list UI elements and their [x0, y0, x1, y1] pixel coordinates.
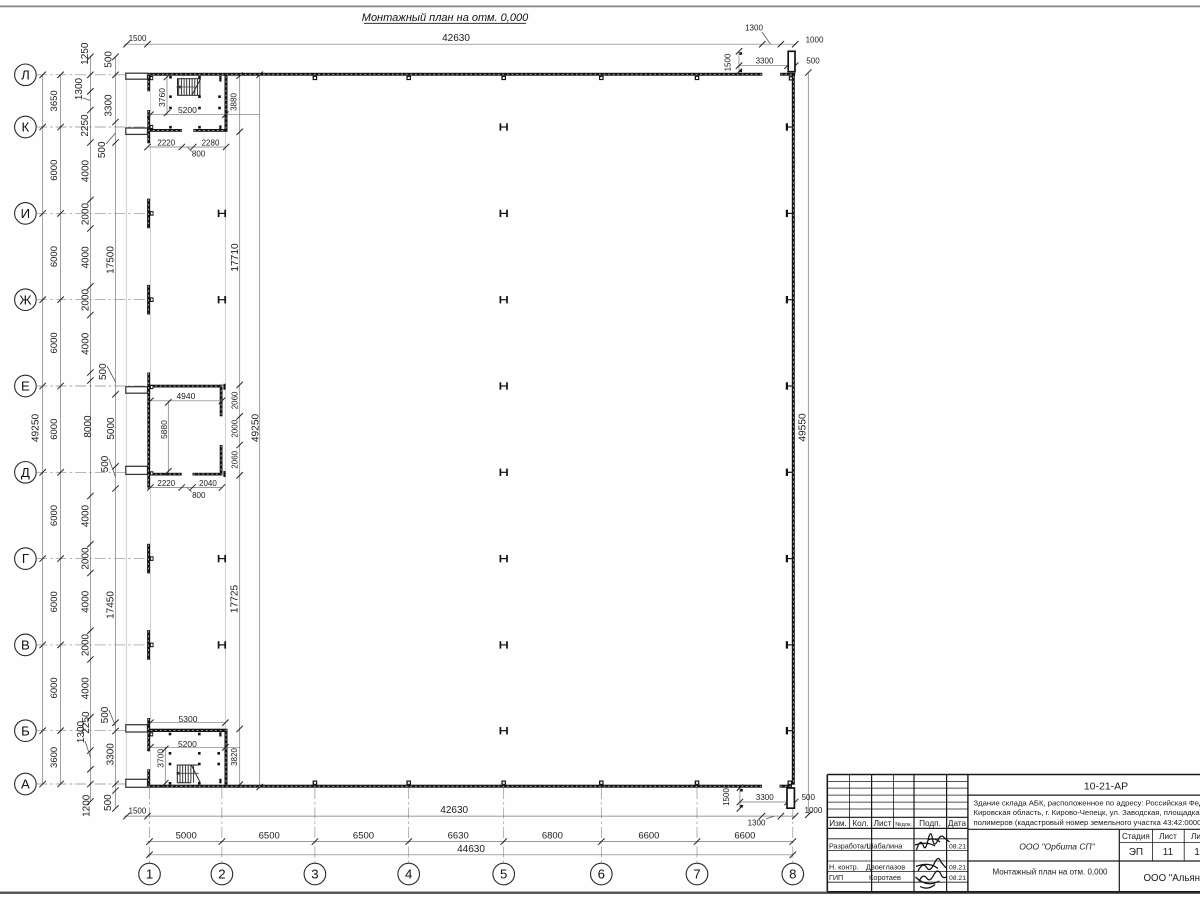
svg-text:1000: 1000 [805, 806, 823, 815]
svg-text:6000: 6000 [49, 160, 60, 181]
svg-text:6600: 6600 [734, 831, 755, 842]
svg-text:1500: 1500 [723, 53, 732, 71]
svg-text:Кол.: Кол. [852, 819, 868, 828]
svg-text:Стадия: Стадия [1122, 832, 1150, 841]
svg-text:2040: 2040 [199, 479, 217, 488]
svg-text:4000: 4000 [81, 159, 92, 182]
svg-text:4: 4 [405, 867, 412, 882]
svg-text:2220: 2220 [157, 139, 175, 148]
svg-text:42630: 42630 [440, 805, 468, 816]
svg-text:500: 500 [103, 794, 114, 811]
svg-text:3760: 3760 [157, 88, 167, 107]
svg-text:2: 2 [218, 867, 225, 882]
svg-text:Д: Д [21, 465, 30, 480]
svg-text:1000: 1000 [806, 36, 824, 45]
svg-text:Ж: Ж [19, 292, 31, 307]
svg-text:3880: 3880 [229, 93, 238, 111]
svg-text:08.21: 08.21 [949, 865, 966, 872]
svg-text:4940: 4940 [176, 391, 195, 401]
svg-text:Е: Е [21, 379, 30, 394]
svg-text:Л: Л [21, 67, 30, 82]
svg-text:Кировская область, г. Кирово-Ч: Кировская область, г. Кирово-Чепецк, ул.… [974, 808, 1200, 817]
svg-text:6500: 6500 [259, 831, 280, 842]
svg-text:17450: 17450 [106, 591, 117, 619]
svg-text:3: 3 [311, 867, 318, 882]
svg-text:49250: 49250 [250, 414, 261, 443]
svg-text:1200: 1200 [82, 794, 93, 817]
svg-text:4000: 4000 [81, 332, 92, 355]
svg-text:1300: 1300 [76, 720, 87, 743]
svg-text:Монтажный план на отм. 0,000: Монтажный план на отм. 0,000 [993, 867, 1108, 876]
svg-text:42630: 42630 [442, 33, 470, 44]
svg-text:Шабалина: Шабалина [867, 841, 904, 850]
svg-text:1300: 1300 [745, 24, 763, 33]
svg-text:1300: 1300 [748, 819, 766, 828]
svg-text:8000: 8000 [83, 415, 94, 438]
svg-text:3300: 3300 [104, 94, 115, 117]
svg-text:3820: 3820 [230, 748, 239, 766]
svg-text:Коротаев: Коротаев [869, 873, 901, 882]
svg-text:11: 11 [1163, 847, 1174, 858]
svg-text:6000: 6000 [49, 677, 60, 698]
svg-text:Разработал: Разработал [829, 841, 868, 850]
svg-text:17710: 17710 [230, 243, 241, 272]
svg-text:4000: 4000 [81, 590, 92, 613]
svg-text:500: 500 [100, 455, 111, 472]
svg-text:К: К [22, 120, 30, 135]
svg-text:2060: 2060 [231, 391, 240, 409]
svg-text:5000: 5000 [106, 417, 117, 440]
svg-text:5200: 5200 [178, 105, 197, 115]
svg-text:5: 5 [500, 867, 507, 882]
svg-text:7: 7 [693, 867, 700, 882]
svg-text:ООО "Альянс проект": ООО "Альянс проект" [1144, 873, 1200, 884]
svg-text:Н. контр.: Н. контр. [829, 862, 859, 871]
svg-text:4000: 4000 [81, 677, 92, 700]
svg-text:44630: 44630 [457, 844, 485, 855]
svg-text:ГИП: ГИП [829, 873, 843, 882]
svg-text:3300: 3300 [106, 743, 117, 766]
svg-text:Монтажный план на отм. 0,000: Монтажный план на отм. 0,000 [362, 12, 529, 24]
svg-text:6000: 6000 [49, 246, 60, 267]
svg-text:1500: 1500 [129, 807, 147, 816]
svg-text:Изм.: Изм. [829, 819, 847, 828]
svg-text:6000: 6000 [49, 332, 60, 353]
svg-text:500: 500 [100, 706, 111, 723]
svg-text:3600: 3600 [49, 747, 60, 768]
svg-text:№док.: №док. [895, 822, 912, 828]
svg-text:49550: 49550 [798, 413, 809, 442]
svg-text:6500: 6500 [353, 831, 374, 842]
svg-text:5300: 5300 [179, 714, 198, 724]
svg-text:8: 8 [789, 867, 796, 882]
svg-text:Дата: Дата [948, 819, 967, 828]
svg-text:ЭП: ЭП [1129, 847, 1143, 858]
svg-text:2250: 2250 [80, 114, 91, 137]
svg-text:Г: Г [22, 551, 29, 566]
svg-text:3300: 3300 [756, 793, 774, 802]
svg-text:А: А [21, 777, 30, 792]
svg-text:2220: 2220 [157, 479, 175, 488]
svg-text:2000: 2000 [81, 288, 92, 311]
svg-text:полимеров (кадастровый номер з: полимеров (кадастровый номер земельного … [974, 818, 1200, 827]
svg-text:4000: 4000 [81, 246, 92, 269]
svg-text:08.21: 08.21 [949, 844, 966, 851]
svg-text:800: 800 [192, 491, 206, 500]
svg-text:1: 1 [146, 867, 153, 882]
svg-text:800: 800 [192, 149, 206, 158]
svg-text:1500: 1500 [722, 788, 731, 806]
svg-text:6800: 6800 [542, 831, 563, 842]
svg-text:49250: 49250 [31, 414, 42, 443]
svg-text:6000: 6000 [49, 591, 60, 612]
svg-text:1500: 1500 [129, 34, 147, 43]
svg-text:1300: 1300 [74, 77, 85, 100]
svg-text:17725: 17725 [230, 585, 241, 614]
svg-text:500: 500 [802, 793, 816, 802]
svg-text:ООО "Орбита СП": ООО "Орбита СП" [1019, 842, 1095, 852]
svg-text:Ли: Ли [1191, 832, 1200, 841]
svg-text:2060: 2060 [231, 450, 240, 468]
svg-text:Лист: Лист [1159, 832, 1177, 841]
svg-text:5880: 5880 [159, 420, 169, 439]
svg-text:В: В [21, 638, 30, 653]
svg-text:500: 500 [98, 363, 109, 380]
svg-text:08.21: 08.21 [949, 875, 966, 882]
svg-text:1250: 1250 [80, 42, 91, 65]
svg-text:6: 6 [598, 867, 605, 882]
svg-text:4000: 4000 [81, 504, 92, 527]
svg-text:5000: 5000 [176, 831, 197, 842]
svg-text:500: 500 [103, 51, 114, 68]
svg-text:1: 1 [1194, 847, 1200, 858]
svg-text:3700: 3700 [155, 749, 165, 768]
svg-text:6600: 6600 [638, 831, 659, 842]
svg-text:3300: 3300 [756, 57, 774, 66]
svg-text:17500: 17500 [106, 246, 117, 274]
svg-text:6630: 6630 [448, 831, 469, 842]
svg-text:5200: 5200 [178, 739, 197, 749]
svg-text:2000: 2000 [81, 547, 92, 570]
svg-text:2000: 2000 [231, 419, 240, 437]
svg-text:2000: 2000 [81, 202, 92, 225]
svg-text:Б: Б [21, 723, 30, 738]
svg-text:Здание склада АБК, расположенн: Здание склада АБК, расположенное по адре… [974, 798, 1200, 807]
svg-text:Подп.: Подп. [919, 819, 941, 828]
svg-text:6000: 6000 [49, 419, 60, 440]
svg-text:3650: 3650 [49, 90, 60, 111]
svg-text:Лист: Лист [874, 819, 892, 828]
svg-text:2000: 2000 [81, 633, 92, 656]
svg-text:6000: 6000 [49, 505, 60, 526]
svg-text:Двоеглазов: Двоеглазов [866, 862, 905, 871]
svg-text:И: И [21, 206, 30, 221]
svg-text:10-21-АР: 10-21-АР [1084, 781, 1128, 793]
svg-text:2280: 2280 [202, 139, 220, 148]
svg-text:500: 500 [806, 56, 820, 65]
